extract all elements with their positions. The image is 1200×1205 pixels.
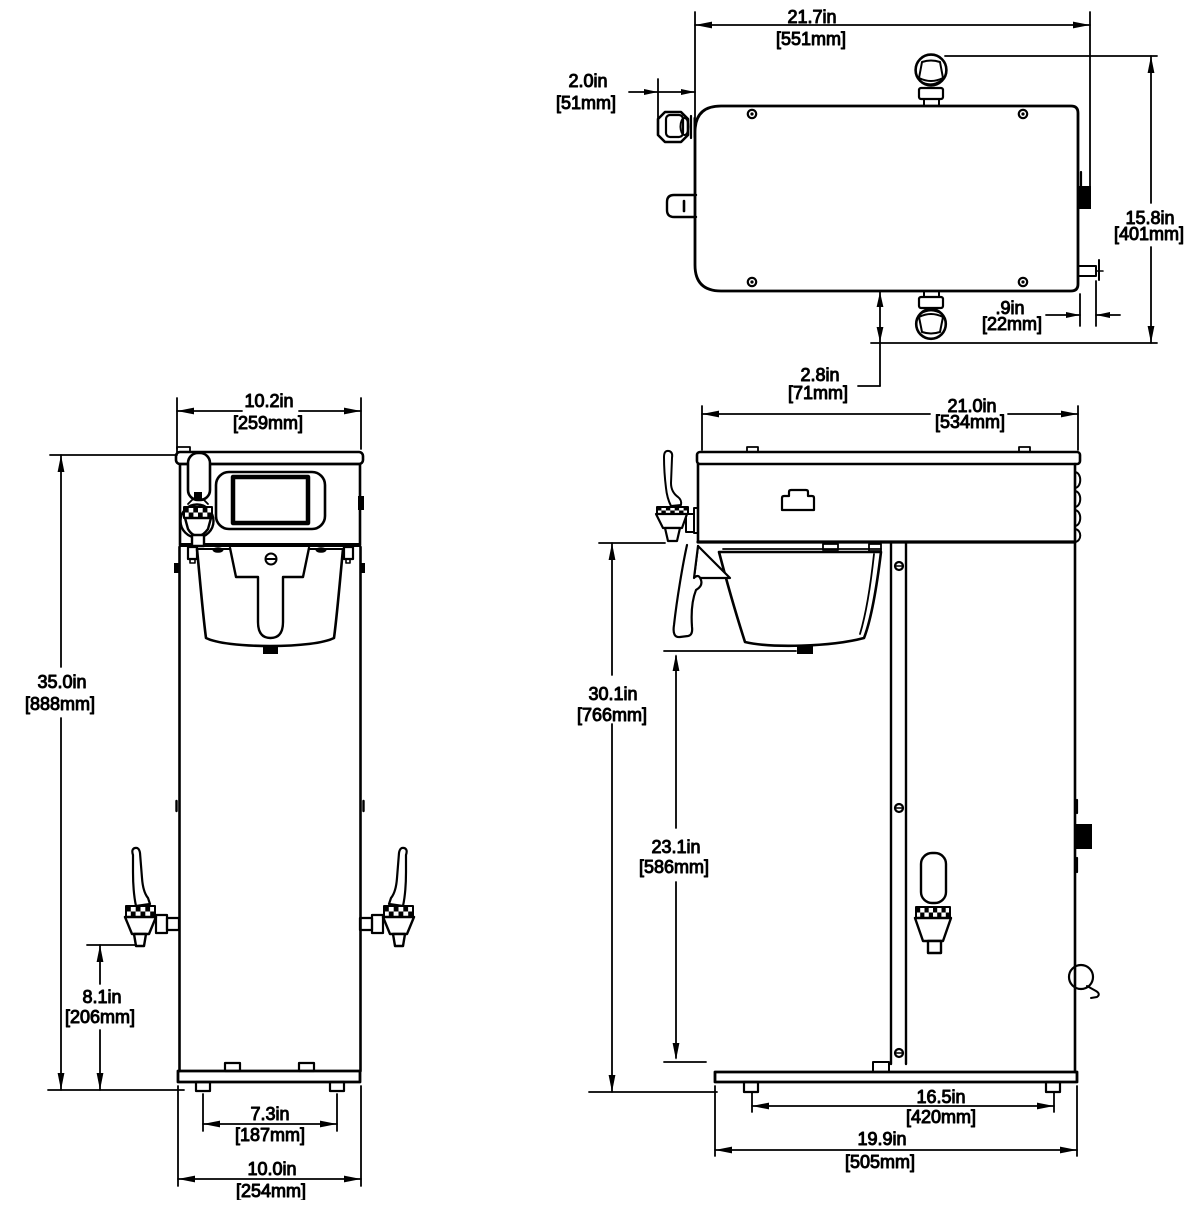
svg-text:[71mm]: [71mm]	[788, 383, 848, 403]
svg-text:[187mm]: [187mm]	[235, 1125, 305, 1145]
svg-text:[401mm]: [401mm]	[1114, 224, 1184, 244]
svg-text:[551mm]: [551mm]	[776, 29, 846, 49]
svg-text:19.9in: 19.9in	[857, 1129, 906, 1149]
svg-text:2.0in: 2.0in	[568, 71, 607, 91]
svg-text:21.7in: 21.7in	[787, 7, 836, 27]
svg-text:[206mm]: [206mm]	[65, 1007, 135, 1027]
svg-text:8.1in: 8.1in	[82, 987, 121, 1007]
svg-text:[766mm]: [766mm]	[577, 705, 647, 725]
svg-text:10.0in: 10.0in	[247, 1159, 296, 1179]
svg-text:[534mm]: [534mm]	[935, 412, 1005, 432]
svg-text:7.3in: 7.3in	[250, 1104, 289, 1124]
svg-text:30.1in: 30.1in	[588, 684, 637, 704]
svg-text:[22mm]: [22mm]	[982, 314, 1042, 334]
svg-text:[586mm]: [586mm]	[639, 857, 709, 877]
svg-text:2.8in: 2.8in	[800, 365, 839, 385]
svg-text:[888mm]: [888mm]	[25, 694, 95, 714]
svg-text:[254mm]: [254mm]	[236, 1181, 306, 1200]
svg-text:[505mm]: [505mm]	[845, 1152, 915, 1172]
svg-text:10.2in: 10.2in	[244, 391, 293, 411]
svg-text:35.0in: 35.0in	[37, 672, 86, 692]
svg-text:23.1in: 23.1in	[651, 837, 700, 857]
svg-text:[259mm]: [259mm]	[233, 413, 303, 433]
svg-text:16.5in: 16.5in	[916, 1087, 965, 1107]
svg-text:[51mm]: [51mm]	[556, 93, 616, 113]
svg-text:[420mm]: [420mm]	[906, 1107, 976, 1127]
